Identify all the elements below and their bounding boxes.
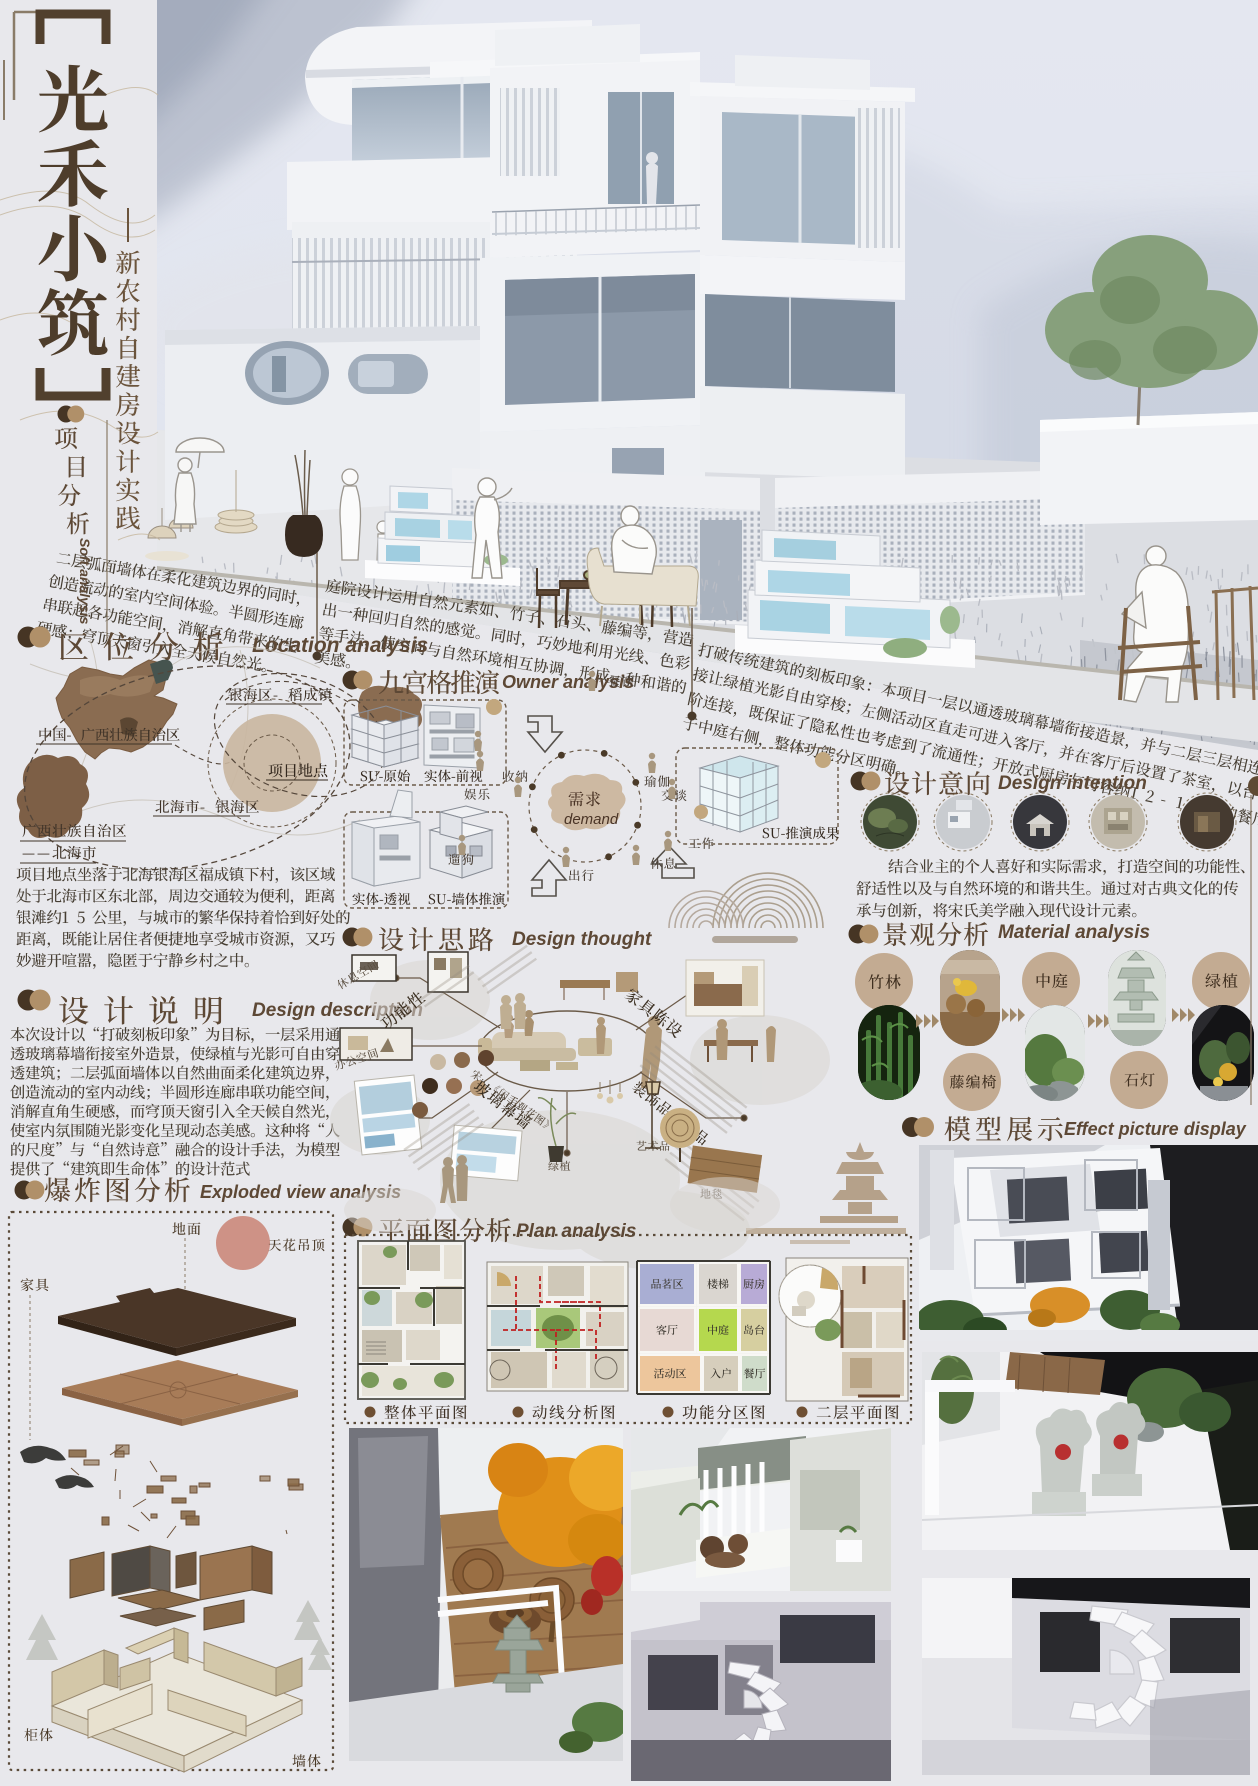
svg-text:Effect picture display: Effect picture display xyxy=(1064,1119,1247,1139)
svg-text:Design thought: Design thought xyxy=(512,929,652,950)
svg-text:demand: demand xyxy=(564,811,619,828)
svg-text:Soft analysis: Soft analysis xyxy=(77,538,93,625)
svg-text:Material analysis: Material analysis xyxy=(998,922,1150,943)
svg-text:Location analysis: Location analysis xyxy=(252,634,428,657)
svg-text:Design intention: Design intention xyxy=(998,773,1147,794)
svg-text:Plan analysis: Plan analysis xyxy=(516,1221,636,1242)
